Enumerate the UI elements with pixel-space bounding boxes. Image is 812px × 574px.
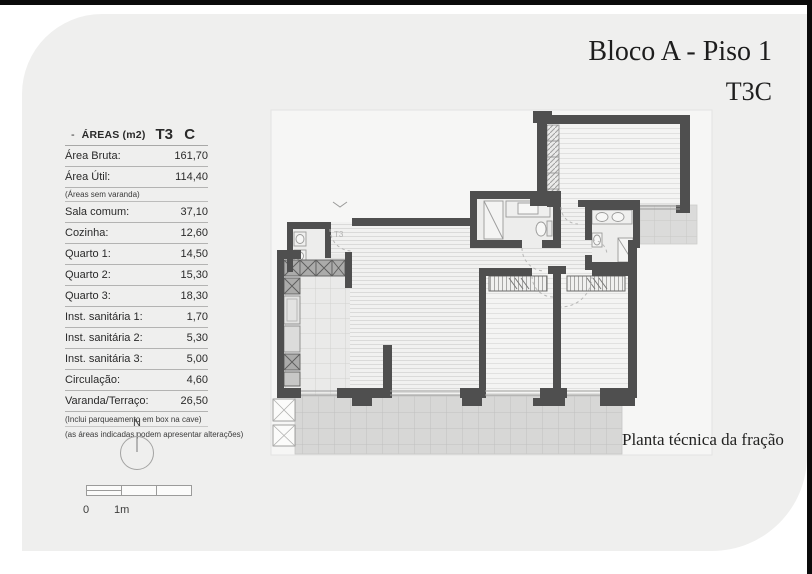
- area-row: Inst. sanitária 1:1,70: [65, 307, 208, 328]
- area-row: Área Útil:114,40: [65, 167, 208, 188]
- scale-bar-graphic: [86, 485, 196, 498]
- page-title: Bloco A - Piso 1: [588, 36, 772, 68]
- area-row: Inst. sanitária 2:5,30: [65, 328, 208, 349]
- area-row-value: 5,30: [187, 332, 208, 344]
- scale-bar-labels: 0 1m: [86, 503, 196, 516]
- floor-plan: T3: [270, 108, 715, 458]
- north-arrow-graphic: [115, 430, 159, 482]
- page-subtitle: T3C: [588, 77, 772, 107]
- area-row-label: Varanda/Terraço:: [65, 395, 149, 407]
- detail-rows: Sala comum:37,10Cozinha:12,60Quarto 1:14…: [65, 202, 208, 412]
- right-frame-bar: [807, 0, 812, 574]
- quarto2-wardrobe: [567, 276, 625, 291]
- area-row: Área Bruta:161,70: [65, 146, 208, 167]
- area-row-label: Inst. sanitária 2:: [65, 332, 143, 344]
- area-row-value: 4,60: [187, 374, 208, 386]
- area-row-label: Inst. sanitária 3:: [65, 353, 143, 365]
- area-row-value: 15,30: [180, 269, 208, 281]
- area-row-value: 1,70: [187, 311, 208, 323]
- area-row-value: 114,40: [175, 171, 208, 183]
- top-frame-bar: [0, 0, 812, 5]
- header-title: ÁREAS (m2): [82, 129, 146, 141]
- room-quarto3-floor: [547, 121, 682, 207]
- area-row-label: Cozinha:: [65, 227, 108, 239]
- area-row-label: Área Bruta:: [65, 150, 121, 162]
- area-row-label: Inst. sanitária 1:: [65, 311, 143, 323]
- scale-zero-label: 0: [83, 504, 89, 516]
- areas-table-header: - ÁREAS (m2) T3 C: [65, 124, 208, 146]
- area-row: Circulação:4,60: [65, 370, 208, 391]
- area-row: Sala comum:37,10: [65, 202, 208, 223]
- area-row-value: 161,70: [174, 150, 208, 162]
- area-row: Quarto 2:15,30: [65, 265, 208, 286]
- area-row-label: Quarto 3:: [65, 290, 111, 302]
- area-row: Quarto 3:18,30: [65, 286, 208, 307]
- area-row-value: 37,10: [180, 206, 208, 218]
- header-dash: -: [71, 129, 75, 141]
- area-row-value: 5,00: [187, 353, 208, 365]
- area-row-label: Quarto 2:: [65, 269, 111, 281]
- header-unit-type: T3 C: [156, 126, 196, 143]
- floor-plan-drawing: T3: [270, 108, 715, 458]
- terrace-bottom: [273, 396, 622, 454]
- areas-table: - ÁREAS (m2) T3 C Área Bruta:161,70Área …: [65, 124, 208, 442]
- area-row: Inst. sanitária 3:5,00: [65, 349, 208, 370]
- area-row-label: Quarto 1:: [65, 248, 111, 260]
- entry-type-label: T3: [334, 230, 344, 239]
- summary-note: (Áreas sem varanda): [65, 188, 208, 202]
- plan-caption: Planta técnica da fração: [622, 430, 784, 450]
- scale-1m-label: 1m: [114, 504, 129, 516]
- scale-bar: 0 1m: [86, 485, 196, 513]
- area-row-label: Sala comum:: [65, 206, 129, 218]
- area-row: Quarto 1:14,50: [65, 244, 208, 265]
- area-row-label: Área Útil:: [65, 171, 110, 183]
- north-arrow: N: [115, 417, 159, 487]
- quarto1-wardrobe: [489, 276, 547, 291]
- area-row-label: Circulação:: [65, 374, 120, 386]
- sheet: Bloco A - Piso 1 T3C - ÁREAS (m2) T3 C Á…: [0, 0, 812, 574]
- area-row-value: 12,60: [180, 227, 208, 239]
- title-block: Bloco A - Piso 1 T3C: [588, 36, 772, 107]
- area-row-value: 26,50: [180, 395, 208, 407]
- area-row-value: 14,50: [180, 248, 208, 260]
- area-row-value: 18,30: [180, 290, 208, 302]
- summary-rows: Área Bruta:161,70Área Útil:114,40: [65, 146, 208, 188]
- area-row: Cozinha:12,60: [65, 223, 208, 244]
- north-label: N: [115, 417, 159, 430]
- area-row: Varanda/Terraço:26,50: [65, 391, 208, 412]
